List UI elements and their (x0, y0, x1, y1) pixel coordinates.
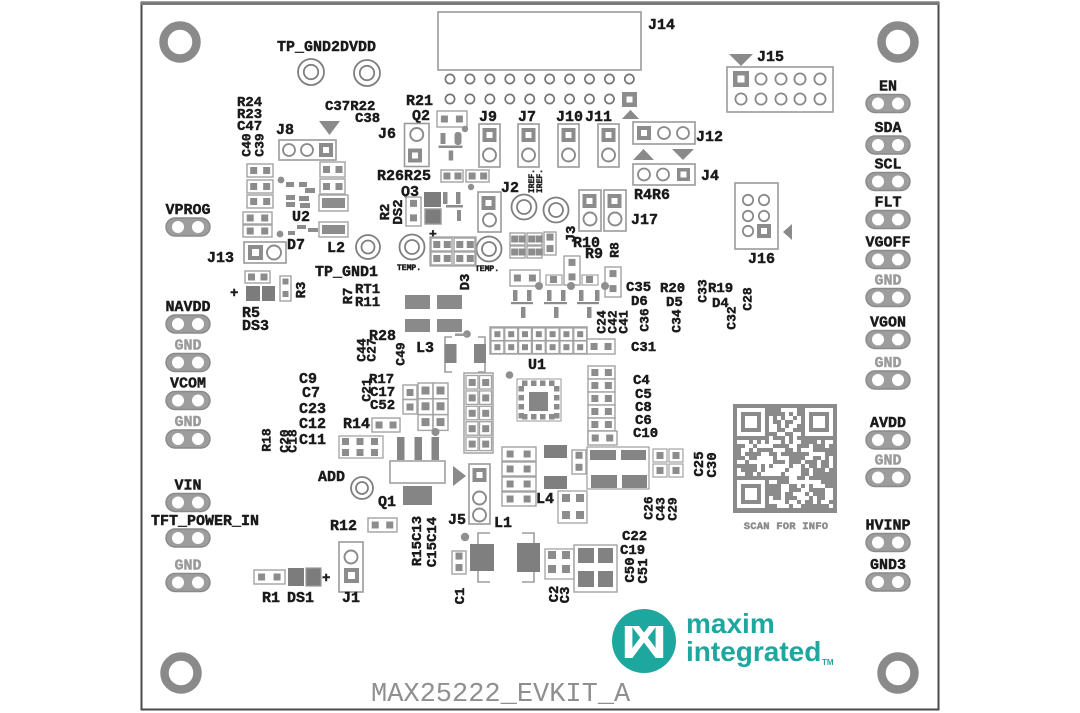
svg-text:DS2: DS2 (391, 199, 407, 224)
svg-text:J1: J1 (342, 590, 360, 607)
svg-text:R26R25: R26R25 (377, 168, 431, 185)
svg-text:C11: C11 (299, 432, 326, 449)
svg-text:C31: C31 (631, 340, 656, 356)
svg-text:VIN: VIN (174, 478, 201, 495)
svg-text:L2: L2 (327, 240, 345, 257)
svg-text:C36: C36 (638, 308, 653, 332)
svg-text:J13: J13 (207, 250, 234, 267)
svg-text:IREF.: IREF. (536, 169, 545, 193)
svg-text:J5: J5 (448, 512, 466, 529)
svg-text:DVDD: DVDD (340, 39, 376, 56)
svg-text:U2: U2 (292, 209, 310, 226)
svg-text:integrated: integrated (686, 636, 821, 667)
svg-text:C3: C3 (558, 587, 574, 604)
svg-text:C18: C18 (286, 429, 301, 453)
svg-text:R3: R3 (294, 282, 310, 299)
svg-text:TEMP.: TEMP. (397, 264, 421, 273)
svg-text:R11: R11 (355, 295, 380, 311)
svg-text:D6: D6 (631, 294, 648, 310)
svg-text:C39: C39 (253, 133, 268, 157)
svg-text:C51: C51 (636, 558, 652, 583)
svg-text:C29: C29 (666, 497, 681, 521)
svg-text:C10: C10 (633, 426, 658, 442)
svg-text:L3: L3 (416, 340, 434, 357)
svg-text:D3: D3 (458, 274, 474, 291)
svg-text:GND: GND (874, 355, 901, 372)
svg-text:TFT_POWER_IN: TFT_POWER_IN (151, 513, 259, 530)
svg-text:C12: C12 (299, 416, 326, 433)
svg-text:L4: L4 (536, 491, 554, 508)
svg-text:C7: C7 (302, 385, 320, 402)
svg-text:C1: C1 (453, 588, 469, 605)
svg-text:R14: R14 (343, 416, 370, 433)
svg-text:J2: J2 (501, 180, 519, 197)
svg-text:R15C13: R15C13 (410, 516, 426, 566)
svg-text:C47: C47 (237, 119, 262, 135)
svg-text:GND: GND (174, 338, 201, 355)
svg-text:NAVDD: NAVDD (165, 299, 210, 316)
svg-text:GND: GND (174, 414, 201, 431)
svg-text:C28: C28 (741, 287, 756, 311)
svg-text:C52: C52 (370, 398, 395, 414)
svg-text:R1: R1 (262, 590, 280, 607)
svg-text:C38: C38 (355, 111, 380, 127)
svg-text:VPROG: VPROG (165, 202, 210, 219)
svg-text:HVINP: HVINP (865, 518, 910, 535)
svg-text:J8: J8 (276, 122, 294, 139)
svg-text:U1: U1 (528, 357, 546, 374)
svg-text:J17: J17 (631, 212, 658, 229)
svg-text:C19: C19 (620, 543, 645, 559)
svg-text:C30: C30 (705, 452, 721, 477)
svg-text:R19: R19 (708, 281, 733, 297)
svg-text:EN: EN (879, 79, 897, 96)
svg-text:C41: C41 (617, 310, 632, 334)
svg-text:J12: J12 (696, 129, 723, 146)
svg-text:J15: J15 (757, 49, 784, 66)
svg-text:C27: C27 (365, 338, 380, 361)
svg-text:TP_GND1: TP_GND1 (315, 264, 378, 281)
svg-text:SCL: SCL (874, 157, 901, 174)
svg-text:TM: TM (822, 658, 834, 667)
svg-text:R12: R12 (330, 518, 357, 535)
svg-text:TP_GND2: TP_GND2 (277, 39, 340, 56)
svg-text:C34: C34 (670, 309, 685, 333)
svg-text:GND: GND (174, 558, 201, 575)
svg-text:VGON: VGON (870, 315, 906, 332)
svg-text:+: + (230, 286, 238, 302)
svg-text:J16: J16 (748, 251, 775, 268)
svg-text:R9: R9 (585, 246, 603, 263)
svg-text:maxim: maxim (686, 608, 775, 639)
svg-text:FLT: FLT (874, 195, 901, 212)
svg-text:R4R6: R4R6 (634, 187, 670, 204)
svg-text:R8: R8 (608, 242, 623, 258)
svg-text:GND: GND (874, 273, 901, 290)
svg-text:J4: J4 (701, 168, 719, 185)
svg-text:GND: GND (874, 453, 901, 470)
svg-text:C49: C49 (394, 342, 409, 366)
svg-text:J6: J6 (378, 126, 396, 143)
svg-text:D5: D5 (666, 295, 683, 311)
svg-text:Q1: Q1 (378, 494, 396, 511)
svg-text:C32: C32 (725, 306, 740, 330)
svg-text:C15C14: C15C14 (425, 517, 441, 567)
svg-text:DS1: DS1 (287, 590, 314, 607)
svg-text:SCAN FOR INFO: SCAN FOR INFO (744, 521, 829, 533)
svg-text:AVDD: AVDD (870, 415, 906, 432)
svg-text:MAX25222_EVKIT_A: MAX25222_EVKIT_A (371, 680, 631, 710)
svg-text:D7: D7 (287, 237, 305, 254)
svg-text:R18: R18 (260, 428, 275, 452)
svg-text:+: + (322, 571, 330, 587)
svg-text:VGOFF: VGOFF (865, 235, 910, 252)
svg-text:J14: J14 (648, 17, 675, 34)
svg-text:VCOM: VCOM (170, 376, 206, 393)
svg-text:Q2: Q2 (412, 108, 430, 125)
svg-text:ADD: ADD (318, 469, 345, 486)
svg-text:DS3: DS3 (242, 318, 269, 335)
svg-text:SDA: SDA (874, 120, 901, 137)
svg-text:L1: L1 (494, 515, 512, 532)
svg-text:TEMP.: TEMP. (475, 265, 499, 274)
svg-text:GND3: GND3 (870, 557, 906, 574)
